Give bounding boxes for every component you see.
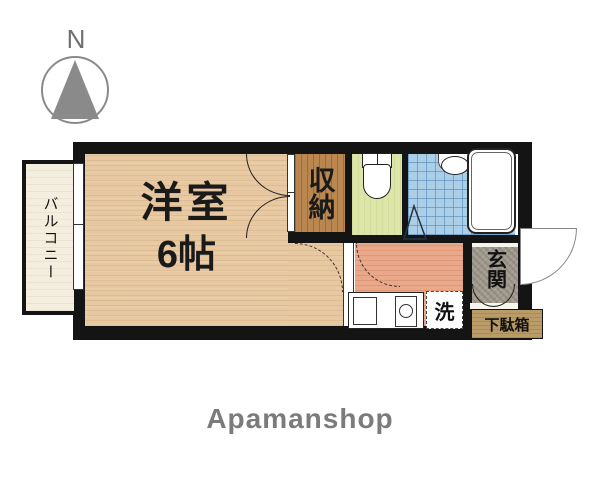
washer-space-box: 洗: [426, 291, 463, 329]
balcony-window: [73, 163, 84, 290]
compass-needle-icon: [51, 60, 99, 119]
shoe-cabinet-label: 下駄箱: [471, 309, 543, 339]
wall-closet-toilet: [345, 154, 352, 232]
toilet-bowl-icon: [363, 164, 391, 199]
balcony-label: バルコニー: [26, 168, 74, 308]
bath-sink-icon: [441, 156, 469, 175]
wall-closet-bottom: [288, 232, 352, 243]
main-room-size: 6帖: [85, 234, 288, 276]
brand-text: Apamanshop: [0, 403, 600, 435]
wall-wet-area-bottom: [352, 235, 532, 243]
balcony-window-divider: [73, 224, 84, 225]
entrance-door-swing-icon: [520, 228, 577, 285]
wall-top: [73, 142, 532, 154]
bathtub-inner-line: [471, 152, 512, 230]
bath-door-triangle-icon: [402, 204, 428, 242]
entrance-label: 玄関: [472, 245, 518, 293]
compass-north-label: N: [60, 24, 92, 55]
closet-label: 収納: [295, 154, 345, 232]
main-room-name: 洋室: [85, 180, 288, 226]
kitchen-sink-icon: [353, 297, 377, 325]
kitchen-burner-icon: [399, 304, 413, 318]
